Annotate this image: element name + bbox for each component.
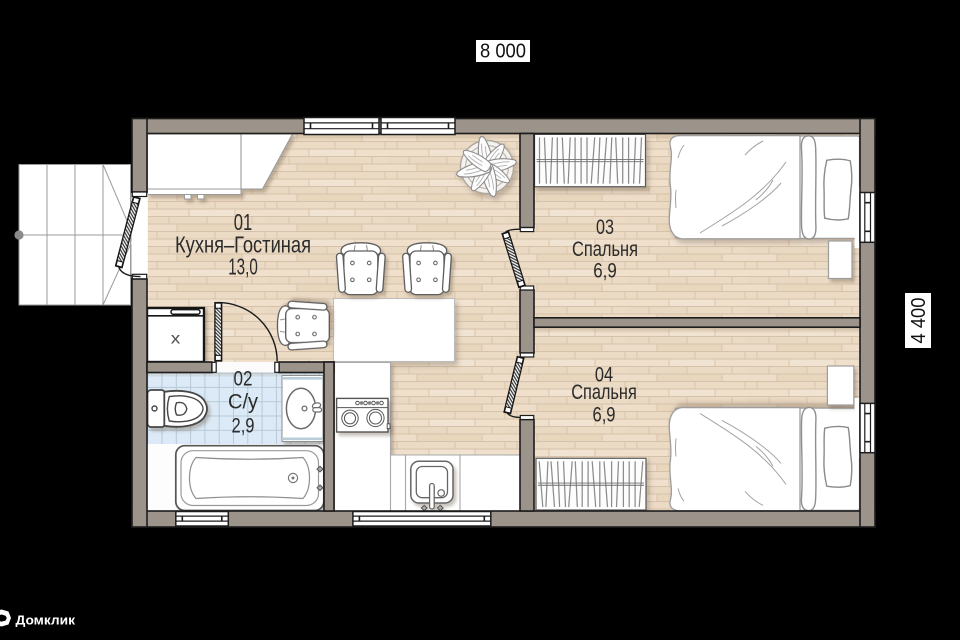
svg-text:С/у: С/у bbox=[228, 391, 258, 414]
svg-text:6,9: 6,9 bbox=[593, 260, 617, 283]
svg-text:Спальня: Спальня bbox=[572, 238, 638, 261]
svg-text:8 000: 8 000 bbox=[480, 40, 526, 63]
svg-text:13,0: 13,0 bbox=[228, 254, 258, 280]
svg-text:2,9: 2,9 bbox=[232, 415, 255, 438]
svg-text:Домклик: Домклик bbox=[16, 613, 76, 628]
svg-text:03: 03 bbox=[596, 216, 614, 239]
svg-text:4 400: 4 400 bbox=[907, 298, 930, 344]
svg-text:02: 02 bbox=[234, 368, 253, 391]
svg-text:Спальня: Спальня bbox=[571, 381, 637, 404]
svg-text:6,9: 6,9 bbox=[593, 403, 616, 426]
svg-text:x: x bbox=[171, 331, 181, 348]
